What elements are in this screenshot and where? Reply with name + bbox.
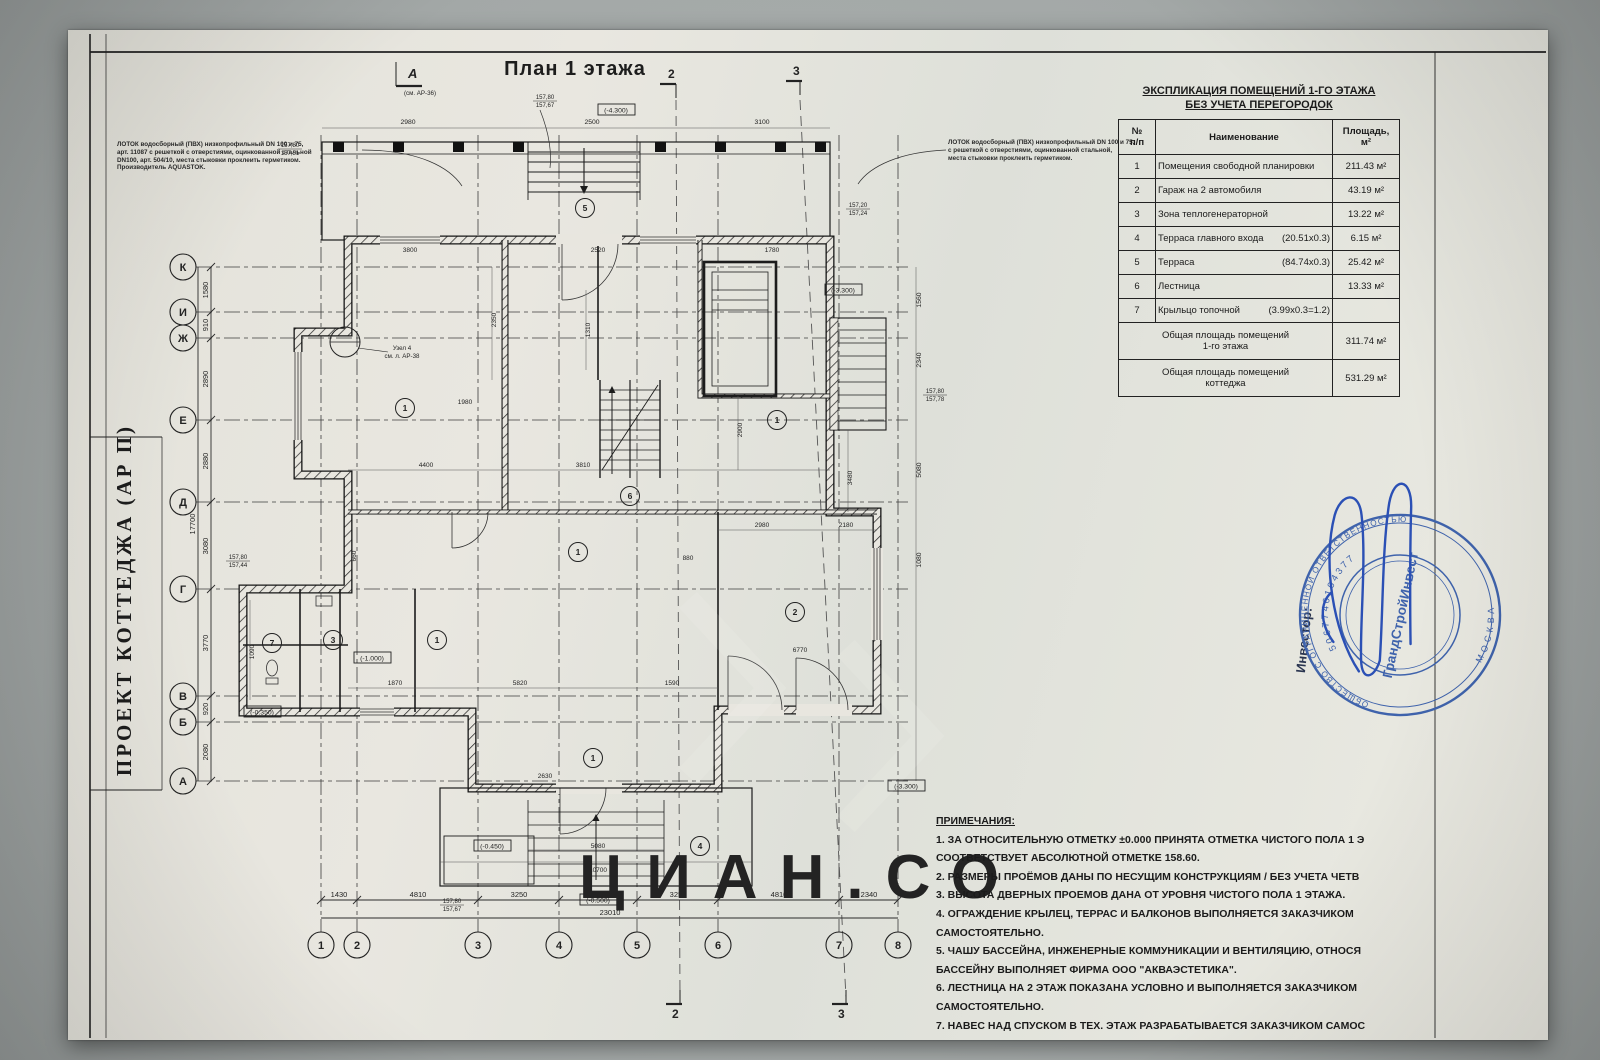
svg-text:1: 1 <box>403 403 408 413</box>
svg-text:157,24: 157,24 <box>849 211 868 217</box>
axis-labels-bottom: 1 2 3 4 5 6 7 8 <box>318 940 901 952</box>
svg-text:3: 3 <box>475 940 481 952</box>
note-line: 1. ЗА ОТНОСИТЕЛЬНУЮ ОТМЕТКУ ±0.000 ПРИНЯ… <box>936 831 1446 850</box>
svg-text:4: 4 <box>556 940 563 952</box>
svg-text:5: 5 <box>634 940 640 952</box>
col-header-num: № п/п <box>1119 120 1156 155</box>
svg-text:1: 1 <box>318 940 324 952</box>
svg-text:6: 6 <box>715 940 721 952</box>
svg-text:2: 2 <box>793 607 798 617</box>
svg-text:3800: 3800 <box>403 247 418 254</box>
svg-text:Д: Д <box>179 497 187 509</box>
svg-text:1310: 1310 <box>585 322 592 337</box>
section-3-marker: 3 <box>793 64 800 78</box>
svg-text:5: 5 <box>583 203 588 213</box>
section-2-marker-bottom: 2 <box>672 1007 679 1021</box>
entrance-steps <box>528 142 640 200</box>
svg-text:660: 660 <box>351 550 358 561</box>
svg-text:157,44: 157,44 <box>229 563 248 569</box>
svg-text:2980: 2980 <box>400 119 415 126</box>
fixtures <box>266 596 332 684</box>
door-swings <box>452 244 848 834</box>
svg-text:(-0.350): (-0.350) <box>250 710 274 717</box>
svg-text:157,80: 157,80 <box>443 899 462 905</box>
view-a-ref: (см. АР-36) <box>404 90 436 97</box>
svg-text:Е: Е <box>179 415 186 427</box>
leader-lines <box>362 110 946 186</box>
table-row: 2 Гараж на 2 автомобиля 43.19 м² <box>1119 179 1400 203</box>
svg-text:Узел 4: Узел 4 <box>393 345 412 352</box>
svg-text:2340: 2340 <box>916 352 923 367</box>
svg-text:6770: 6770 <box>793 647 808 654</box>
note-line: САМОСТОЯТЕЛЬНО. <box>936 924 1446 943</box>
svg-text:3: 3 <box>331 635 336 645</box>
svg-text:1: 1 <box>435 635 440 645</box>
svg-text:1090: 1090 <box>249 644 256 659</box>
svg-text:2: 2 <box>354 940 360 952</box>
table-row: 7 Крыльцо топочной(3.99х0.3=1.2) <box>1119 299 1400 323</box>
notes-block: ПРИМЕЧАНИЯ: 1. ЗА ОТНОСИТЕЛЬНУЮ ОТМЕТКУ … <box>936 812 1446 1035</box>
svg-text:3250: 3250 <box>511 890 528 899</box>
table-total-row: Общая площадь помещений коттеджа 531.29 … <box>1119 360 1400 397</box>
note-line: СООТВЕТСТВУЕТ АБСОЛЮТНОЙ ОТМЕТКЕ 158.60. <box>936 849 1446 868</box>
axis-bubbles-bottom <box>308 932 911 958</box>
notes-heading: ПРИМЕЧАНИЯ: <box>936 812 1446 831</box>
svg-text:см. л. АР-38: см. л. АР-38 <box>384 353 420 360</box>
table-row: 5 Терраса(84.74х0.3) 25.42 м² <box>1119 251 1400 275</box>
svg-text:2890: 2890 <box>201 371 210 388</box>
svg-text:7: 7 <box>836 940 842 952</box>
note-line: 6. ЛЕСТНИЦА НА 2 ЭТАЖ ПОКАЗАНА УСЛОВНО И… <box>936 979 1446 998</box>
svg-text:880: 880 <box>683 555 694 562</box>
svg-text:2630: 2630 <box>538 773 553 780</box>
note-line: 2. РАЗМЕРЫ ПРОЁМОВ ДАНЫ ПО НЕСУЩИМ КОНСТ… <box>936 868 1446 887</box>
svg-text:1980: 1980 <box>458 399 473 406</box>
svg-text:2520: 2520 <box>591 247 606 254</box>
svg-text:3810: 3810 <box>576 462 591 469</box>
svg-text:5820: 5820 <box>513 680 528 687</box>
svg-text:1590: 1590 <box>665 680 680 687</box>
svg-text:2500: 2500 <box>584 119 599 126</box>
svg-text:4810: 4810 <box>410 890 427 899</box>
svg-text:2080: 2080 <box>201 744 210 761</box>
table-row: 6 Лестница 13.33 м² <box>1119 275 1400 299</box>
svg-text:7: 7 <box>270 638 275 648</box>
svg-text:8: 8 <box>895 940 901 952</box>
svg-text:И: И <box>179 307 187 319</box>
stamp-ring-bottom-text: МОСКВА <box>1473 602 1500 666</box>
svg-text:2180: 2180 <box>839 522 854 529</box>
svg-text:5080: 5080 <box>916 462 923 477</box>
col-header-name: Наименование <box>1156 120 1333 155</box>
note-line: САМОСТОЯТЕЛЬНО. <box>936 998 1446 1017</box>
pool <box>704 262 776 396</box>
svg-text:(-4.300): (-4.300) <box>604 108 628 115</box>
svg-text:1: 1 <box>775 415 780 425</box>
svg-text:17700: 17700 <box>188 514 197 535</box>
note-line: БАССЕЙНУ ВЫПОЛНЯЕТ ФИРМА ООО "АКВАЭСТЕТИ… <box>936 961 1446 980</box>
svg-text:4400: 4400 <box>419 462 434 469</box>
svg-text:(-3.300): (-3.300) <box>831 288 855 295</box>
svg-text:А: А <box>179 776 187 788</box>
table-total-row: Общая площадь помещений 1-го этажа 311.7… <box>1119 323 1400 360</box>
stamp-company-name: ГрандСтройИнвест <box>1380 550 1421 679</box>
svg-text:910: 910 <box>201 319 210 332</box>
note-line: 7. НАВЕС НАД СПУСКОМ В ТЕХ. ЭТАЖ РАЗРАБА… <box>936 1017 1446 1036</box>
section-2-marker: 2 <box>668 67 675 81</box>
table-row: 4 Терраса главного входа(20.51х0.3) 6.15… <box>1119 227 1400 251</box>
svg-text:Б: Б <box>179 717 187 729</box>
scanned-floor-plan-photo: К И Ж Е Д Г В Б А 1 2 3 4 5 6 7 8 1 <box>0 0 1600 1060</box>
explication-table: ЭКСПЛИКАЦИЯ ПОМЕЩЕНИЙ 1-ГО ЭТАЖА БЕЗ УЧЕ… <box>1118 84 1400 397</box>
section-3-marker-bottom: 3 <box>838 1007 845 1021</box>
svg-text:157,20: 157,20 <box>849 203 868 209</box>
svg-text:3100: 3100 <box>754 119 769 126</box>
svg-text:3770: 3770 <box>201 635 210 652</box>
table-header-row: № п/п Наименование Площадь, м² <box>1119 120 1400 155</box>
sheet-side-title: ПРОЕКТ КОТТЕДЖА (АР П) <box>112 424 137 776</box>
dim-labels-left: 1580 910 2890 2880 3080 3770 920 2080 17… <box>188 282 210 761</box>
svg-text:1870: 1870 <box>388 680 403 687</box>
svg-text:1560: 1560 <box>916 292 923 307</box>
note-line: 5. ЧАШУ БАССЕЙНА, ИНЖЕНЕРНЫЕ КОММУНИКАЦИ… <box>936 942 1446 961</box>
view-a-marker: А <box>407 66 417 81</box>
svg-text:3080: 3080 <box>201 538 210 555</box>
note-line: 3. ВЫСОТА ДВЕРНЫХ ПРОЕМОВ ДАНА ОТ УРОВНЯ… <box>936 886 1446 905</box>
svg-text:157,67: 157,67 <box>443 907 462 913</box>
svg-text:3480: 3480 <box>847 470 854 485</box>
dim-labels-small: 3800 2520 1780 4400 3810 2980 2180 5820 … <box>249 247 854 874</box>
svg-text:Ж: Ж <box>177 333 188 345</box>
svg-text:920: 920 <box>201 703 210 716</box>
svg-text:157,78: 157,78 <box>926 397 945 403</box>
note-line: 4. ОГРАЖДЕНИЕ КРЫЛЕЦ, ТЕРРАС И БАЛКОНОВ … <box>936 905 1446 924</box>
svg-text:2350: 2350 <box>491 312 498 327</box>
interior-stair <box>600 380 660 478</box>
top-terrace <box>322 142 830 240</box>
svg-text:157,80: 157,80 <box>229 555 248 561</box>
svg-text:6: 6 <box>628 491 633 501</box>
svg-text:(-0.450): (-0.450) <box>480 844 504 851</box>
svg-text:1: 1 <box>591 753 596 763</box>
col-header-area: Площадь, м² <box>1333 120 1400 155</box>
svg-text:1080: 1080 <box>916 552 923 567</box>
page-title: План 1 этажа <box>504 58 646 81</box>
svg-text:2980: 2980 <box>755 522 770 529</box>
svg-text:157,80: 157,80 <box>536 95 555 101</box>
svg-text:157,80: 157,80 <box>926 389 945 395</box>
svg-text:Г: Г <box>180 584 187 596</box>
svg-text:157,67: 157,67 <box>536 103 555 109</box>
signature <box>1294 482 1452 683</box>
svg-text:2880: 2880 <box>201 453 210 470</box>
axis-grid <box>196 135 908 932</box>
company-stamp: ОБЩЕСТВО С ОГРАНИЧЕННОЙ ОТВЕТСТВЕННОСТЬЮ… <box>1240 425 1570 805</box>
svg-text:В: В <box>179 691 187 703</box>
svg-text:К: К <box>180 262 187 274</box>
svg-text:1580: 1580 <box>201 282 210 299</box>
explication-title: ЭКСПЛИКАЦИЯ ПОМЕЩЕНИЙ 1-ГО ЭТАЖА БЕЗ УЧЕ… <box>1118 84 1400 112</box>
gutter-note-left: ЛОТОК водосборный (ПВХ) низкопрофильный … <box>117 141 362 172</box>
svg-text:2900: 2900 <box>737 422 744 437</box>
exterior-stair <box>830 318 886 430</box>
svg-text:1780: 1780 <box>765 247 780 254</box>
svg-text:1430: 1430 <box>331 890 348 899</box>
svg-text:(-1.000): (-1.000) <box>360 656 384 663</box>
table-row: 1 Помещения свободной планировки 211.43 … <box>1119 155 1400 179</box>
table-row: 3 Зона теплогенераторной 13.22 м² <box>1119 203 1400 227</box>
svg-text:1: 1 <box>576 547 581 557</box>
